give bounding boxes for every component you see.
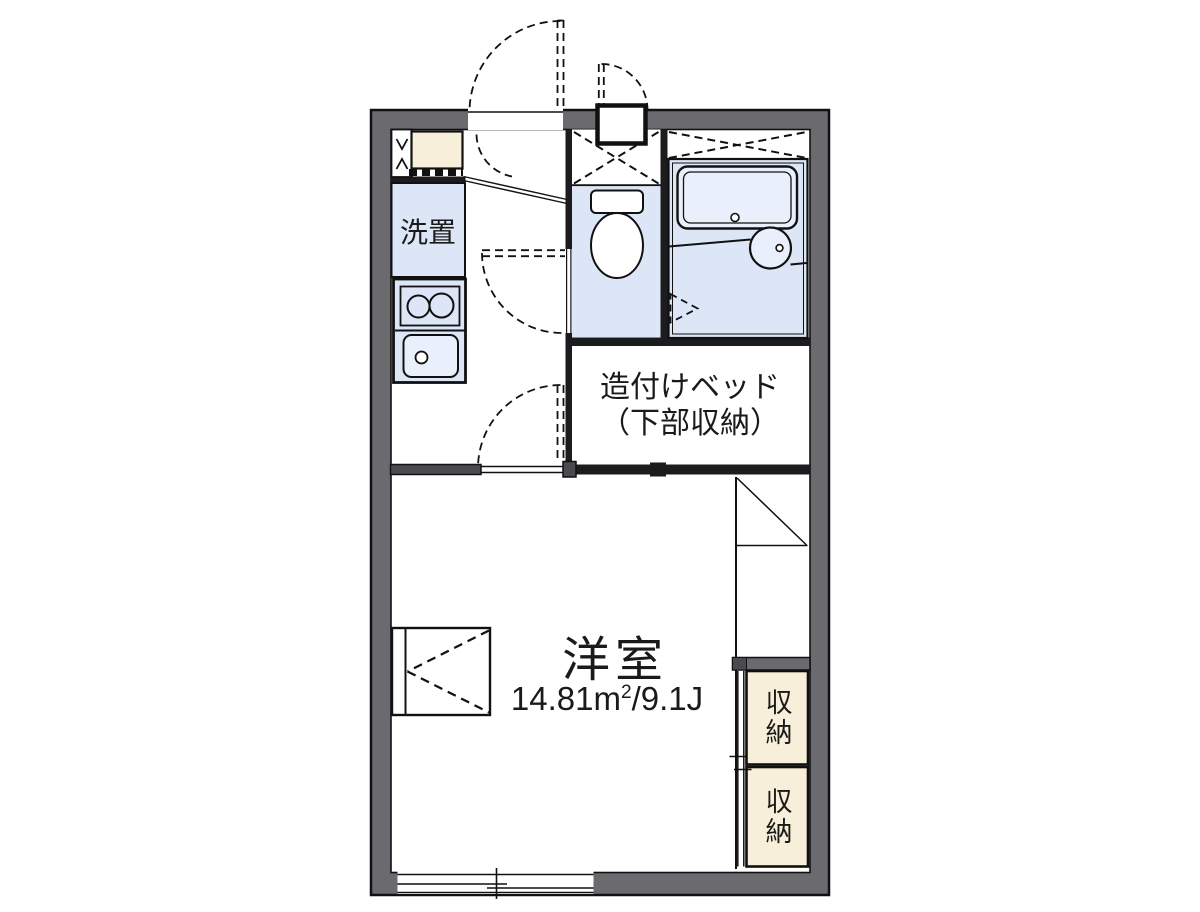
pipe-space (392, 130, 413, 178)
wall-door-post (563, 462, 576, 478)
wall-bed-bottom (576, 465, 810, 475)
wall-corridor-bottom (391, 465, 482, 475)
wall-toilet-left-upper (566, 130, 573, 250)
entrance-door-swing (470, 20, 564, 112)
washer-space-label: 洗置 (389, 211, 467, 251)
tub-drain (731, 214, 739, 222)
closet-upper-label: 収納 (746, 671, 808, 765)
toilet-window-swing (599, 64, 648, 110)
kitchen-sink (404, 335, 459, 377)
built-in-bed-label: 造付けベッド （下部収納） (569, 370, 811, 442)
main-room-area: 14.81m2/9.1J (457, 680, 757, 718)
wall-toilet-bath (661, 130, 668, 341)
floorplan-svg (0, 0, 1200, 912)
toilet-window (598, 106, 646, 144)
burner-left (408, 296, 430, 318)
toilet-bowl (591, 213, 643, 278)
floor-plan-page: 洗置 造付けベッド （下部収納） 洋室 14.81m2/9.1J 収納 収納 (0, 0, 1200, 912)
area-unit: m (593, 680, 621, 717)
wash-basin (750, 228, 791, 269)
closet-lower-label: 収納 (746, 767, 808, 867)
toilet-tank (591, 191, 643, 214)
bathroom (669, 159, 808, 338)
bed-label-line2: （下部収納） (569, 406, 811, 442)
basin-faucet (776, 245, 783, 252)
area-tail: /9.1J (632, 680, 704, 717)
burner-right (430, 294, 454, 318)
area-unit-sup: 2 (621, 682, 632, 703)
sink-drain (416, 352, 428, 364)
washer-pad (412, 132, 463, 169)
area-value: 14.81 (511, 680, 594, 717)
kitchen-unit (394, 279, 466, 383)
entrance-opening (468, 109, 563, 131)
wall-junction (650, 463, 666, 477)
closet-top-wall-cap (733, 658, 747, 671)
bed-label-line1: 造付けベッド (569, 370, 811, 406)
